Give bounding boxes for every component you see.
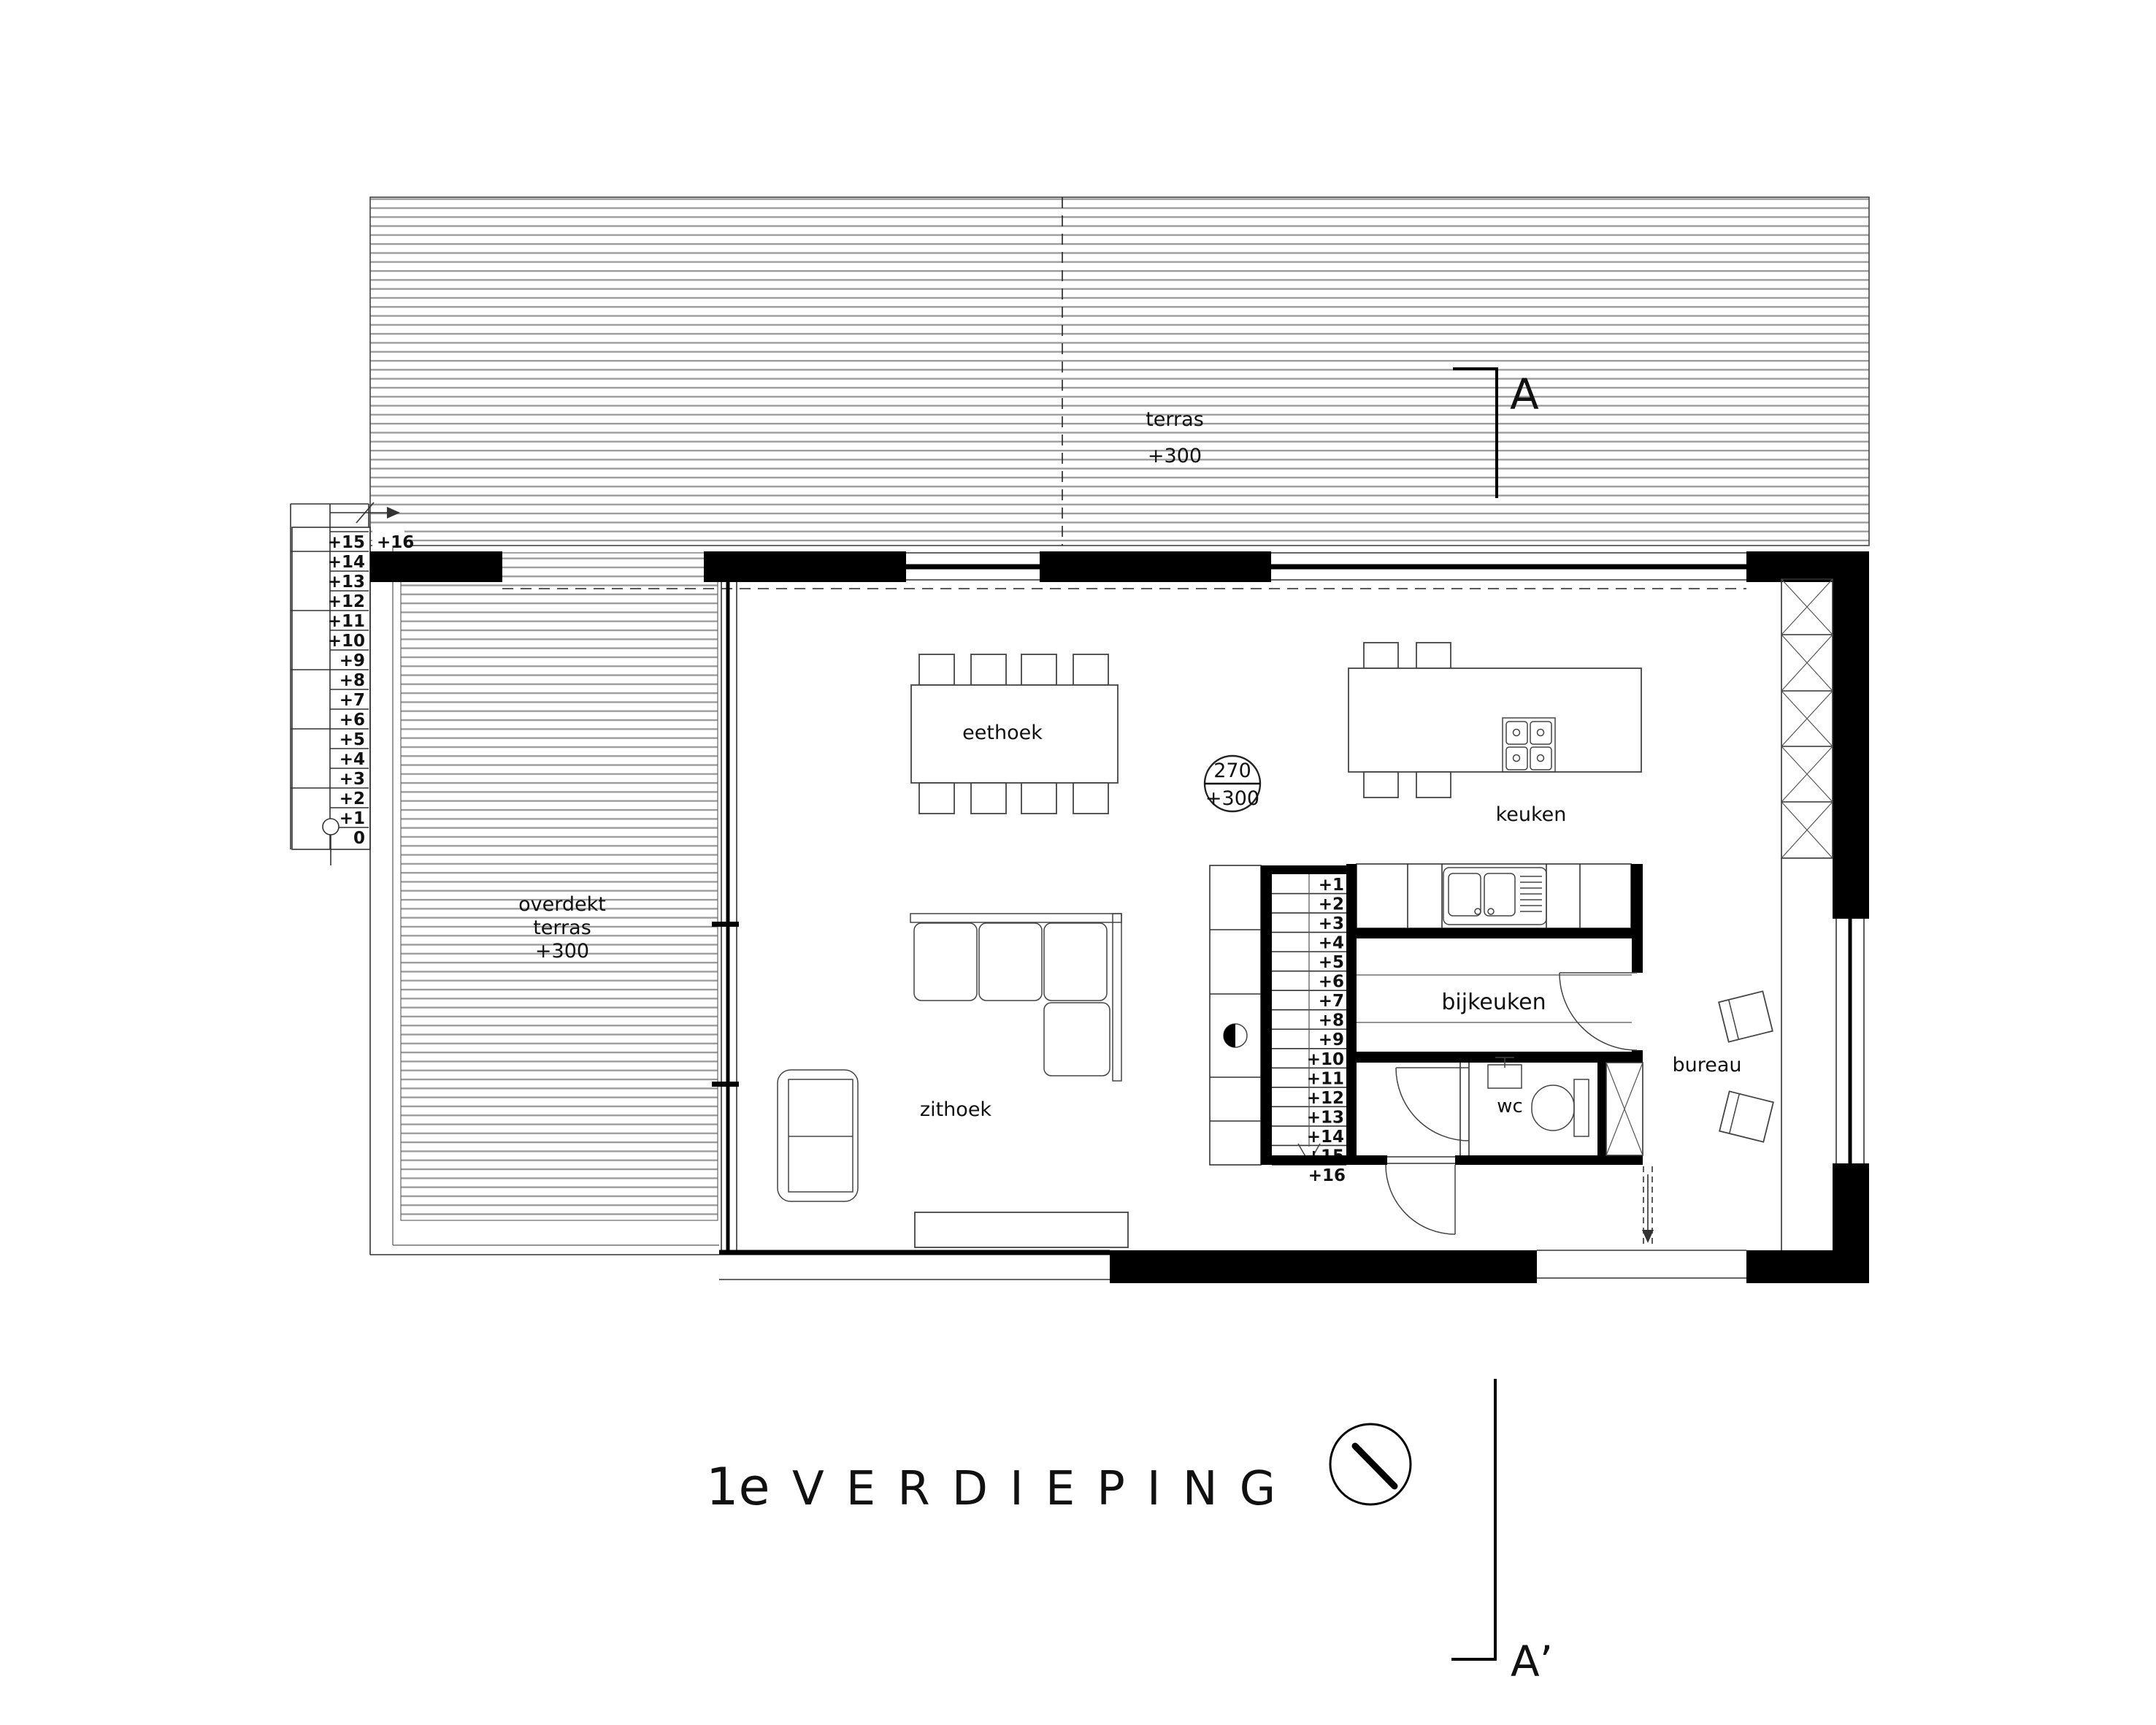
toilet-icon: [1532, 1079, 1589, 1136]
dining-chair: [1021, 783, 1056, 814]
stair-step-label: +6: [339, 711, 365, 730]
sideboard: [915, 1212, 1128, 1247]
dining-chair: [919, 783, 954, 814]
sink-icon: [1443, 868, 1546, 925]
kitchen-stool: [1416, 772, 1451, 798]
stair-step-label: +10: [1307, 1050, 1344, 1069]
utility-room: bijkeuken: [1357, 938, 1643, 1063]
opening-bottom-right: [1537, 1250, 1746, 1278]
main-staircase: +1+2+3+4+5+6+7+8+9+10+11+12+13+14+15 +16: [1210, 864, 1643, 1234]
dining-chair: [971, 783, 1006, 814]
bijkeuken-label: bijkeuken: [1441, 990, 1546, 1015]
section-marker-a-prime: A’: [1451, 1379, 1553, 1686]
stair-step-label: +9: [339, 651, 365, 670]
stair-step-label: +5: [339, 730, 365, 749]
wc-door: [1396, 1068, 1469, 1141]
dining-chair: [971, 654, 1006, 685]
armchair: [778, 1070, 858, 1201]
stair-step-label: +3: [1319, 914, 1344, 933]
window-wall-right: [1836, 919, 1864, 1163]
badge-ceiling-height: 270: [1213, 760, 1251, 782]
bureau-label: bureau: [1672, 1054, 1741, 1076]
left-stair-step-labels: +15+14+13+12+11+10+9+8+7+6+5+4+3+2+10: [328, 533, 365, 848]
window-wall-bottom: [719, 1252, 1110, 1280]
stair-step-label: +15: [328, 533, 365, 552]
dining-chair: [1073, 654, 1108, 685]
level-badge: 270 +300: [1205, 756, 1260, 811]
title-prefix: 1e: [706, 1457, 770, 1517]
stair-step-label: +7: [1319, 992, 1344, 1011]
kitchen-area: keuken: [1349, 643, 1641, 826]
wc-room: wc: [1357, 1052, 1643, 1155]
hall-door: [1386, 1165, 1455, 1234]
desk-chair: [1719, 991, 1773, 1041]
void-exit-arrow: [1642, 1166, 1654, 1246]
floor-plan-drawing: terras +300 A +15+14+13+12+11+10+9+8+7+6…: [0, 0, 2156, 1725]
wall-cabinet-column: [1781, 579, 1833, 1250]
stair-step-label: +10: [328, 632, 365, 651]
stair-step-label: +12: [1307, 1089, 1344, 1108]
stair-step-label: +14: [328, 553, 365, 572]
north-compass: [1330, 1424, 1411, 1504]
stair-step-label: +11: [1307, 1069, 1344, 1088]
stair-step-label: +8: [1319, 1011, 1344, 1030]
desk-chair: [1719, 1091, 1773, 1141]
title-block: 1e VERDIEPING A’: [706, 1379, 1553, 1686]
dining-chair: [1073, 783, 1108, 814]
stair-step-label: +4: [339, 750, 365, 769]
eethoek-label: eethoek: [962, 722, 1043, 744]
stair-step-label: +2: [339, 789, 365, 808]
terras-label: terras: [1146, 408, 1204, 431]
stair-step-label: +1: [339, 809, 365, 828]
kitchen-stool: [1364, 772, 1398, 798]
title-name: VERDIEPING: [792, 1462, 1297, 1516]
stair-step-label: +7: [339, 691, 365, 710]
stair-step-label: +3: [339, 770, 365, 789]
corner-sofa: [910, 914, 1121, 1081]
kitchen-counter: [1346, 864, 1643, 938]
stair-step-label: +13: [1307, 1108, 1344, 1127]
stair-step-label: +14: [1307, 1128, 1344, 1147]
stair-step-label: +6: [1319, 973, 1344, 992]
floor-plan-sheet: terras +300 A +15+14+13+12+11+10+9+8+7+6…: [0, 0, 2156, 1725]
left-stair-landing-label: +16: [377, 533, 414, 552]
stair-step-label: +11: [328, 612, 365, 631]
terrace-top: terras +300: [370, 197, 1869, 546]
office-area: bureau: [1672, 991, 1773, 1141]
stair-step-label: +12: [328, 592, 365, 611]
overdekt-level: +300: [535, 940, 589, 963]
wc-label: wc: [1497, 1095, 1523, 1117]
dining-chair: [1021, 654, 1056, 685]
stair-step-label: +13: [328, 573, 365, 592]
sitting-area: zithoek: [778, 914, 1128, 1247]
window-top-1: [906, 553, 1040, 580]
stair-step-label: +9: [1319, 1030, 1344, 1049]
main-stair-step-labels: +1+2+3+4+5+6+7+8+9+10+11+12+13+14+15: [1307, 876, 1344, 1166]
kitchen-stool: [1416, 643, 1451, 668]
overdekt-line2: terras: [533, 917, 591, 939]
stair-step-label: +2: [1319, 895, 1344, 914]
stair-step-label: +1: [1319, 876, 1344, 895]
dining-chair: [919, 654, 954, 685]
terrace-covered: overdekt terras +300: [370, 546, 719, 1255]
stair-step-label: +8: [339, 671, 365, 690]
kitchen-stool: [1364, 643, 1398, 668]
stair-step-label: +5: [1319, 953, 1344, 972]
bijkeuken-door: [1560, 973, 1637, 1050]
stair-start-marker: [323, 819, 339, 835]
overdekt-line1: overdekt: [518, 893, 606, 916]
zithoek-label: zithoek: [920, 1098, 992, 1121]
keuken-label: keuken: [1496, 803, 1567, 826]
stair-step-label: +4: [1319, 934, 1344, 953]
section-a-prime-label: A’: [1511, 1637, 1553, 1686]
window-top-2: [1271, 553, 1746, 580]
section-a-label: A: [1510, 370, 1539, 419]
stair-step-label: 0: [353, 829, 365, 848]
dining-area: eethoek: [911, 654, 1118, 814]
badge-floor-level: +300: [1205, 787, 1259, 810]
terras-level: +300: [1148, 445, 1202, 467]
kitchen-island: [1349, 668, 1641, 772]
storage-column: [1210, 865, 1261, 1165]
main-stair-landing-label: +16: [1308, 1166, 1346, 1185]
